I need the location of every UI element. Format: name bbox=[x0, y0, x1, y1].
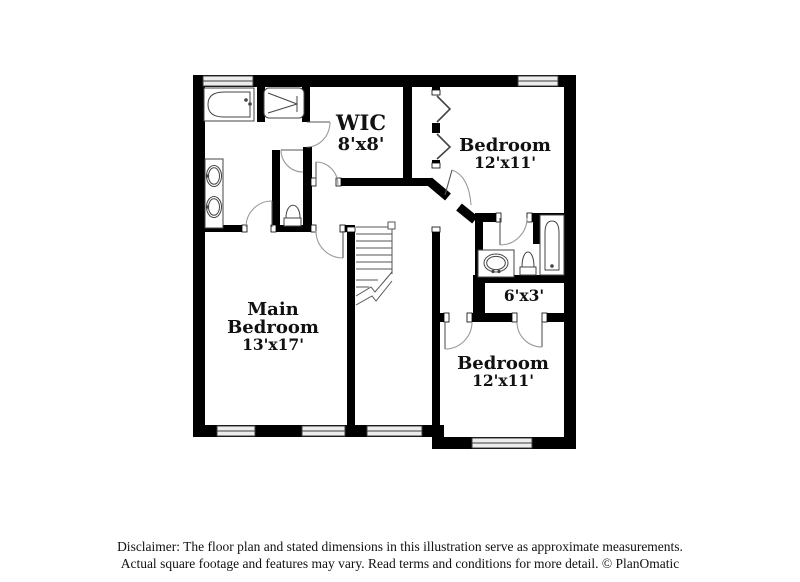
disclaimer-line-1: Disclaimer: The floor plan and stated di… bbox=[117, 539, 683, 554]
wall-segment bbox=[303, 147, 312, 232]
stair-break-line bbox=[356, 272, 392, 296]
toilet-icon bbox=[284, 205, 301, 226]
door-main-bathroom bbox=[246, 201, 272, 227]
door-jamb bbox=[311, 225, 316, 232]
bifold-door-icon bbox=[437, 96, 450, 122]
main-bathroom-fixtures bbox=[204, 88, 304, 228]
floor-plan-page: WIC 8'x8' Bedroom 12'x11' Main Bedroom 1… bbox=[0, 0, 800, 582]
door-bathroom-to-wic bbox=[307, 122, 330, 147]
bifold-door-icon bbox=[437, 134, 450, 159]
door-jamb bbox=[467, 313, 472, 322]
double-vanity-sinks-icon bbox=[205, 159, 223, 228]
wall-segment bbox=[472, 313, 517, 322]
room-label-main-bedroom-dims: 13'x17' bbox=[242, 335, 304, 354]
door-closet-6x3 bbox=[517, 322, 542, 347]
room-label-bedroom-bottom-right-dims: 12'x11' bbox=[472, 371, 534, 390]
door-jamb bbox=[444, 313, 449, 322]
wall-segment-diagonal bbox=[459, 207, 475, 220]
room-label-closet-dims: 6'x3' bbox=[504, 286, 544, 305]
window bbox=[518, 76, 558, 86]
door-jamb bbox=[512, 313, 517, 322]
window bbox=[203, 76, 253, 86]
door-wic-from-hall bbox=[316, 162, 338, 185]
room-label-bedroom-top-right-dims: 12'x11' bbox=[474, 153, 536, 172]
door-jamb bbox=[432, 163, 440, 168]
room-label-wic-name: WIC bbox=[335, 110, 386, 135]
bathtub-icon bbox=[540, 215, 564, 275]
toilet-icon bbox=[520, 252, 536, 275]
disclaimer: Disclaimer: The floor plan and stated di… bbox=[117, 539, 683, 571]
door-jambs bbox=[242, 90, 547, 322]
door-jamb bbox=[311, 178, 316, 186]
door-jamb bbox=[432, 90, 440, 95]
window bbox=[367, 426, 422, 436]
window bbox=[217, 426, 255, 436]
door-jamb bbox=[542, 313, 547, 322]
stairs-icon bbox=[356, 222, 395, 305]
door-water-closet bbox=[281, 150, 303, 172]
door-bedroom-top-right bbox=[445, 170, 471, 205]
bathtub-icon bbox=[204, 88, 254, 121]
wall-segment bbox=[193, 75, 205, 437]
wall-segment bbox=[432, 232, 440, 437]
door-main-bedroom bbox=[316, 231, 343, 258]
wall-segment bbox=[564, 75, 576, 449]
door-jamb bbox=[347, 227, 355, 232]
wall-segment bbox=[473, 275, 485, 317]
wall-segment bbox=[272, 150, 280, 232]
vanity-sink-icon bbox=[478, 250, 514, 277]
door-jamb bbox=[527, 213, 532, 222]
shower-icon bbox=[264, 88, 304, 118]
disclaimer-line-2: Actual square footage and features may v… bbox=[121, 556, 680, 571]
floor-plan-drawing: WIC 8'x8' Bedroom 12'x11' Main Bedroom 1… bbox=[0, 0, 800, 582]
hall-bathroom-fixtures bbox=[478, 215, 564, 277]
window bbox=[472, 438, 532, 448]
wall-segment bbox=[432, 123, 440, 133]
stair-newel-post bbox=[388, 222, 395, 229]
door-hall-bathroom bbox=[500, 218, 527, 245]
window bbox=[302, 426, 345, 436]
wall-segment bbox=[403, 87, 412, 178]
door-jamb bbox=[432, 227, 440, 232]
door-bedroom-bottom-right bbox=[445, 322, 472, 349]
door-jamb bbox=[340, 225, 345, 232]
wall-segment bbox=[347, 232, 355, 425]
room-label-wic-dims: 8'x8' bbox=[338, 134, 385, 155]
wall-segment bbox=[339, 178, 432, 186]
